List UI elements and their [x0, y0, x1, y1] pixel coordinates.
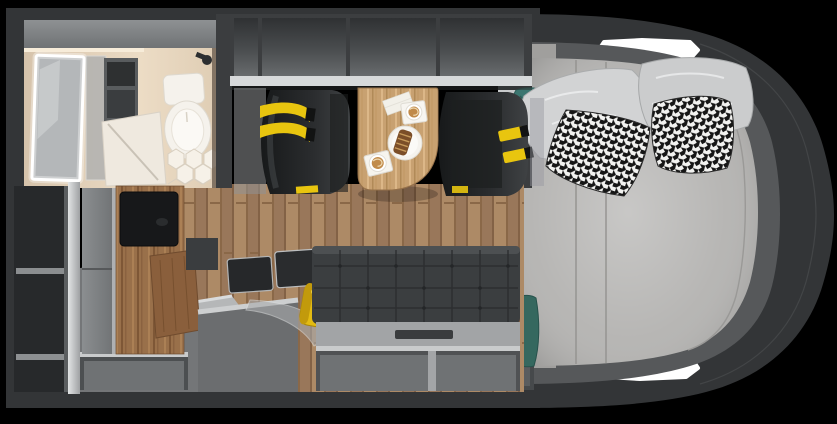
bathroom	[24, 20, 220, 188]
pastry-plate	[388, 126, 422, 160]
under-sofa-storage	[316, 346, 520, 391]
wardrobe-shelves	[14, 186, 68, 392]
floorplan-stage	[0, 0, 837, 424]
overhead-rail	[230, 76, 532, 86]
seatbelt-buckle	[305, 108, 316, 122]
coffee-cup-top	[401, 100, 428, 124]
shower-tray	[102, 112, 166, 186]
overhead-storage	[230, 14, 532, 90]
shower-glass-panel	[86, 56, 106, 180]
seatbelt-buckle	[305, 128, 316, 142]
bathroom-overhead-cabinet	[24, 20, 218, 50]
bathroom-light-strip	[24, 48, 144, 52]
led-mirror	[32, 55, 84, 181]
front-partition	[216, 14, 232, 188]
captain-seat-left	[234, 88, 350, 194]
refrigerator-door-seam	[82, 268, 116, 270]
sofa-top-edge	[312, 246, 520, 254]
sofa-backrest	[312, 246, 520, 324]
seatbelt-tip	[452, 186, 468, 193]
wall-bottom	[6, 390, 540, 408]
bathroom-shelf-unit	[104, 58, 138, 122]
refrigerator-edge	[112, 188, 116, 354]
sofa-seat-latch	[395, 330, 453, 339]
divider-panel	[68, 182, 80, 394]
cooktop-cover	[227, 256, 273, 293]
galley-dark-cabinet	[186, 238, 218, 270]
floorplan-render	[0, 0, 837, 424]
bed-side-floor	[530, 98, 544, 186]
under-counter-storage	[80, 352, 188, 390]
captain-seat-right	[439, 92, 535, 196]
tv-glare	[156, 218, 168, 226]
pillow-houndstooth-right	[652, 96, 734, 173]
tv-screen	[120, 192, 178, 246]
refrigerator	[82, 188, 116, 354]
storage-divider	[428, 351, 436, 391]
sofa	[312, 246, 520, 391]
